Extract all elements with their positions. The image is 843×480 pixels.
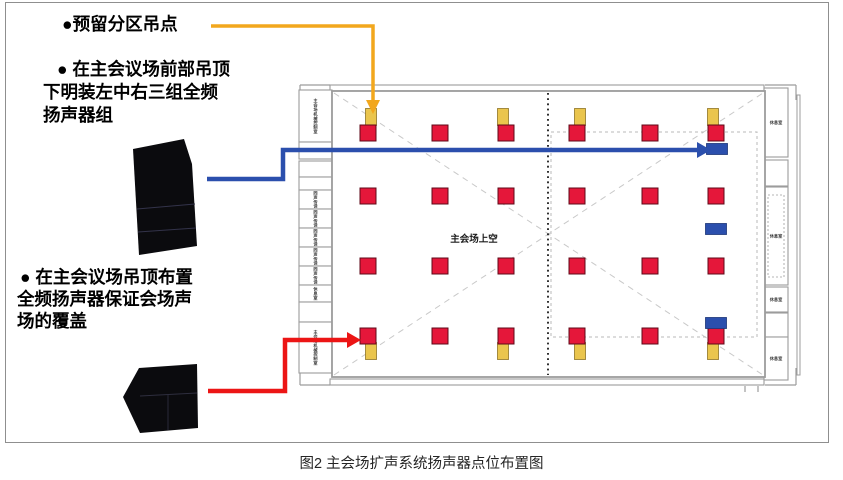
- note-front-speakers: ● 在主会议场前部吊顶 下明装左中右三组全频 扬声器组: [43, 58, 230, 127]
- left-room-label: 同声传译: [312, 209, 318, 229]
- reserved-hanging-point-marker: [575, 343, 586, 360]
- left-room-cell: [299, 177, 332, 190]
- full-range-speaker-marker: [708, 258, 724, 274]
- full-range-speaker-marker: [642, 188, 658, 204]
- note-reserved-points: ●预留分区吊点: [62, 13, 178, 36]
- reserved-hanging-point-marker: [366, 343, 377, 360]
- left-room-cell: [299, 161, 332, 177]
- reserved-hanging-point-marker: [498, 109, 509, 126]
- full-range-speaker-marker: [569, 258, 585, 274]
- full-range-speaker-marker: [432, 188, 448, 204]
- full-range-speaker-marker: [360, 258, 376, 274]
- note-line: 下明装左中右三组全频: [43, 81, 230, 104]
- line-array-body: [133, 139, 197, 255]
- reserved-hanging-point-marker: [498, 343, 509, 360]
- note-line: ● 在主会议场吊顶布置: [17, 266, 193, 288]
- note-line: ● 在主会议场前部吊顶: [43, 58, 230, 81]
- full-range-speaker-marker: [498, 125, 514, 141]
- full-range-speaker-marker: [642, 125, 658, 141]
- figure-caption: 图2 主会场扩声系统扬声器点位布置图: [0, 452, 843, 473]
- full-range-speaker-marker: [642, 258, 658, 274]
- right-room-label: 休息室: [769, 233, 783, 240]
- reserved-hanging-point-marker: [575, 109, 586, 126]
- reserved-hanging-point-marker: [708, 343, 719, 360]
- note-line: ●预留分区吊点: [62, 13, 178, 36]
- full-range-speaker-marker: [360, 328, 376, 344]
- full-range-speaker-marker: [642, 328, 658, 344]
- right-room-cell: [764, 313, 788, 337]
- figure-page: { "figure": { "caption": "图2 主会场扩声系统扬声器点…: [0, 0, 843, 480]
- full-range-speaker-marker: [569, 328, 585, 344]
- line-array-speaker-image: [133, 139, 197, 255]
- blue-speaker-marker: [707, 144, 728, 155]
- full-range-speaker-marker: [569, 125, 585, 141]
- blue-speaker-marker: [706, 224, 727, 235]
- bottom-wall: [330, 379, 764, 385]
- full-range-speaker-marker: [432, 258, 448, 274]
- hall-center-label: 主会场上空: [450, 233, 498, 245]
- note-line: 全频扬声器保证会场声: [17, 288, 193, 310]
- left-room-label: 同声传译: [312, 247, 318, 267]
- full-range-speaker-marker: [708, 328, 724, 344]
- blue-speaker-marker: [706, 318, 727, 329]
- wall-ticks: [745, 386, 758, 392]
- full-range-speaker-marker: [498, 258, 514, 274]
- note-ceiling-speakers: ● 在主会议场吊顶布置 全频扬声器保证会场声 场的覆盖: [17, 266, 193, 332]
- full-range-speaker-marker: [708, 188, 724, 204]
- right-room-label: 休息室: [769, 296, 783, 303]
- full-range-speaker-marker: [432, 125, 448, 141]
- note-line: 扬声器组: [43, 104, 230, 127]
- reserved-hanging-point-marker: [366, 109, 377, 126]
- right-room-cell: [764, 160, 788, 186]
- left-room-label: 同声传译: [312, 190, 318, 210]
- right-room-label: 休息室: [769, 355, 783, 362]
- right-outer-wall: [797, 95, 800, 375]
- full-range-speaker-marker: [360, 125, 376, 141]
- left-room-label: 同声传译: [312, 228, 318, 248]
- full-range-speaker-marker: [498, 188, 514, 204]
- left-room-label: 同声传译: [312, 266, 318, 286]
- reserved-hanging-point-marker: [708, 109, 719, 126]
- full-range-speaker-marker: [569, 188, 585, 204]
- box-speaker-image: [123, 364, 198, 433]
- left-room-cell: [299, 302, 332, 322]
- left-room-label: 休息室: [312, 286, 318, 302]
- full-range-speaker-marker: [360, 188, 376, 204]
- full-range-speaker-marker: [498, 328, 514, 344]
- box-speaker-body: [123, 364, 198, 433]
- full-range-speaker-marker: [708, 125, 724, 141]
- right-room-label: 休息室: [769, 119, 783, 126]
- note-line: 场的覆盖: [17, 310, 193, 332]
- full-range-speaker-marker: [432, 328, 448, 344]
